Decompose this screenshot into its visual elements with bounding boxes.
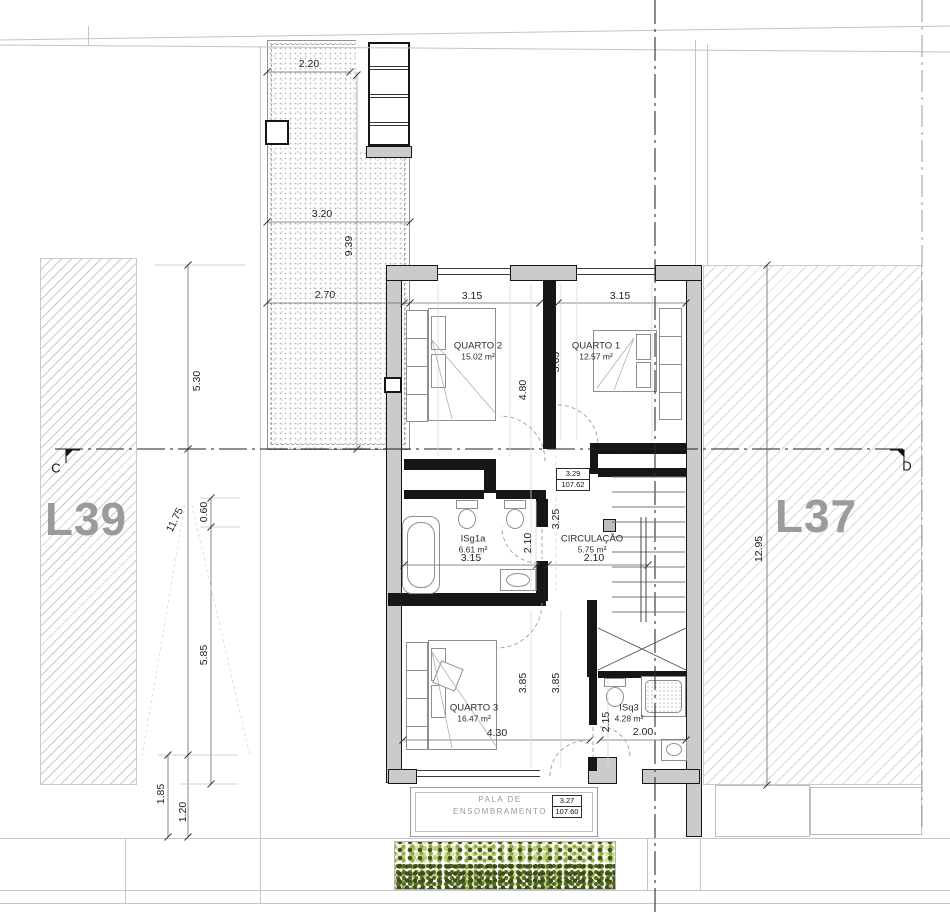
dim-quarto1-width: 3.15 bbox=[610, 290, 630, 302]
section-marker-d: D bbox=[902, 459, 911, 474]
dim-left-bottom-b: 1.20 bbox=[177, 802, 189, 822]
lot-label-l37: L37 bbox=[775, 489, 857, 543]
level-elevation: 107.60 bbox=[553, 807, 581, 817]
lot-label-l39: L39 bbox=[45, 492, 127, 546]
canopy-label-line1: PALA DE bbox=[453, 794, 547, 806]
canopy-label-line2: ENSOMBRAMENTO bbox=[453, 806, 547, 818]
level-marker-upper: 3.29 107.62 bbox=[556, 468, 590, 491]
dim-terrace-height: 9.39 bbox=[343, 236, 355, 256]
dim-quarto1-depth: 3.65 bbox=[550, 352, 562, 372]
room-name: QUARTO 3 bbox=[450, 702, 498, 713]
dim-right-total: 12.95 bbox=[753, 536, 765, 562]
dim-isg1a-depth: 2.10 bbox=[522, 533, 534, 553]
canopy-label: PALA DE ENSOMBRAMENTO bbox=[453, 794, 547, 818]
level-value: 3.27 bbox=[553, 796, 581, 807]
section-marker-c: C bbox=[51, 461, 60, 476]
room-area: 4.28 m² bbox=[615, 714, 644, 724]
staircase bbox=[598, 477, 686, 670]
extension-lines bbox=[142, 265, 250, 784]
dim-isq3-width: 2.00 bbox=[633, 726, 653, 738]
dim-terrace-mid: 3.20 bbox=[312, 208, 332, 220]
room-label-quarto3: QUARTO 3 16.47 m² bbox=[450, 702, 498, 723]
dim-left-bottom-a: 1.85 bbox=[155, 784, 167, 804]
level-elevation: 107.62 bbox=[557, 480, 589, 490]
room-label-quarto1: QUARTO 1 12.57 m² bbox=[572, 340, 620, 361]
room-name: QUARTO 1 bbox=[572, 340, 620, 351]
dim-circulacao-width: 2.10 bbox=[584, 552, 604, 564]
section-marker-flags bbox=[66, 450, 904, 463]
dim-quarto3-depth-a: 3.85 bbox=[517, 673, 529, 693]
level-marker-canopy: 3.27 107.60 bbox=[552, 795, 582, 818]
dim-isg1a-width: 3.15 bbox=[461, 552, 481, 564]
dim-quarto2-depth: 4.80 bbox=[517, 380, 529, 400]
room-name: ISg1a bbox=[459, 533, 488, 544]
dim-landing-depth: 3.25 bbox=[550, 509, 562, 529]
room-area: 16.47 m² bbox=[450, 714, 498, 724]
dim-quarto3-depth-b: 3.85 bbox=[550, 673, 562, 693]
room-name: CIRCULAÇÃO bbox=[561, 533, 623, 544]
dim-terrace-top: 2.20 bbox=[299, 58, 319, 70]
level-value: 3.29 bbox=[557, 469, 589, 480]
dim-left-upper: 5.30 bbox=[191, 371, 203, 391]
dim-left-small: 0.60 bbox=[198, 502, 210, 522]
room-label-isq3: ISq3 4.28 m² bbox=[615, 702, 644, 723]
dim-isq3-depth: 2.15 bbox=[600, 712, 612, 732]
room-name: ISq3 bbox=[615, 702, 644, 713]
dim-terrace-low: 2.70 bbox=[315, 289, 335, 301]
dim-quarto2-width: 3.15 bbox=[462, 290, 482, 302]
dim-quarto3-width: 4.30 bbox=[487, 727, 507, 739]
dimension-ticks bbox=[165, 69, 771, 841]
room-area: 15.02 m² bbox=[454, 352, 502, 362]
linework-layer bbox=[0, 0, 950, 917]
site-slant-lines bbox=[0, 26, 950, 52]
room-area: 12.57 m² bbox=[572, 352, 620, 362]
room-name: QUARTO 2 bbox=[454, 340, 502, 351]
dim-left-lower: 5.85 bbox=[198, 645, 210, 665]
room-label-quarto2: QUARTO 2 15.02 m² bbox=[454, 340, 502, 361]
centerlines bbox=[55, 0, 922, 917]
floor-plan-drawing: L39 L37 C D QUARTO 2 15.02 m² QUARTO 1 1… bbox=[0, 0, 950, 917]
